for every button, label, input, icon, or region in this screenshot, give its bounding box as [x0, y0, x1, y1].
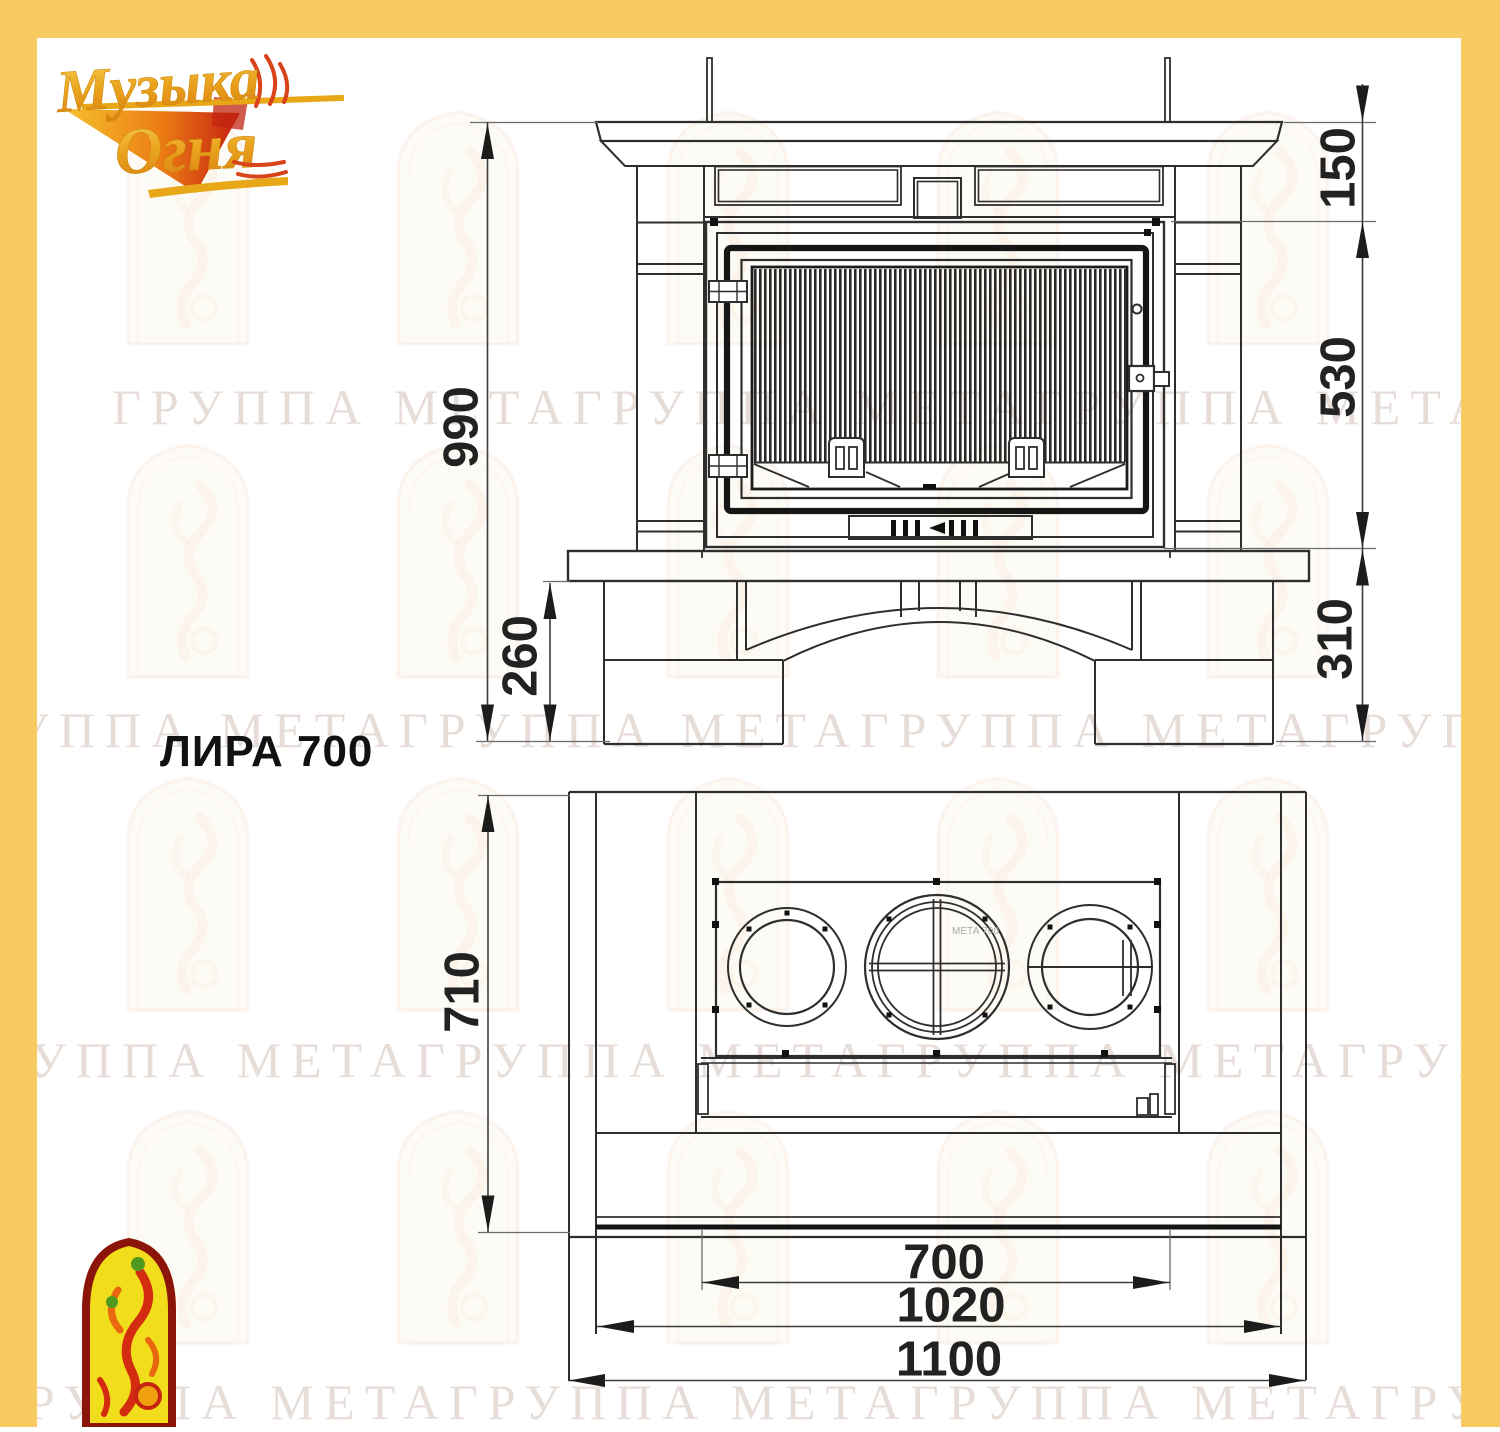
- svg-text:1020: 1020: [896, 1279, 1005, 1333]
- svg-text:310: 310: [1309, 598, 1363, 680]
- svg-text:МЕТА 700: МЕТА 700: [952, 926, 999, 937]
- svg-text:710: 710: [436, 951, 490, 1033]
- svg-text:ЛИРА 700: ЛИРА 700: [160, 727, 373, 776]
- svg-text:150: 150: [1312, 127, 1366, 209]
- svg-text:1100: 1100: [896, 1333, 1002, 1387]
- svg-text:530: 530: [1312, 336, 1366, 418]
- svg-text:ГРУППА МЕТАГРУППА МЕТАГРУППА М: ГРУППА МЕТАГРУППА МЕТАГРУППА МЕТАГРУППА …: [0, 1032, 1500, 1088]
- svg-text:990: 990: [435, 386, 489, 468]
- svg-text:260: 260: [494, 615, 548, 697]
- svg-text:Огня: Огня: [113, 109, 259, 189]
